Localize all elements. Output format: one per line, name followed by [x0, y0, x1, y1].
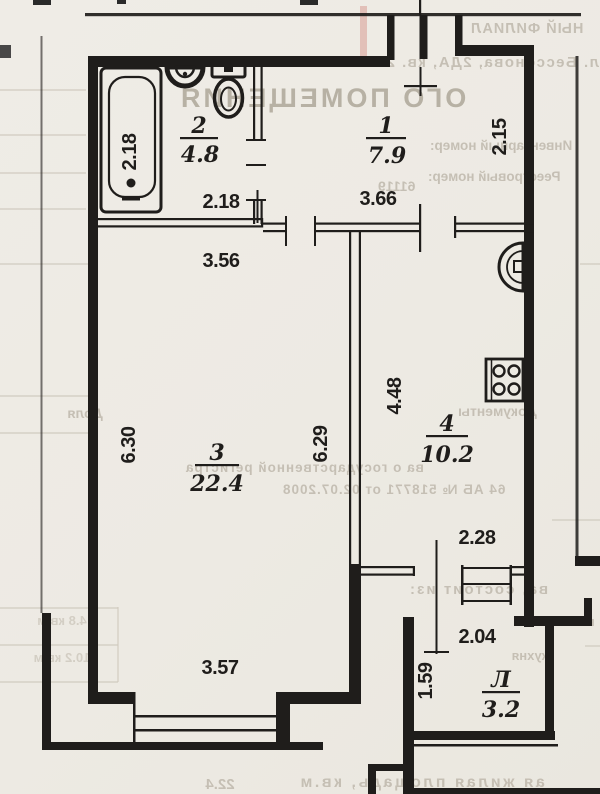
- dim-loggia-depth: 1.59: [415, 662, 437, 699]
- dim-living-height: 6.30: [118, 426, 140, 463]
- exterior-walls: [42, 15, 600, 750]
- fraction-bar: [426, 435, 468, 437]
- washbasin-symbol: [167, 67, 203, 86]
- fraction-bar: [366, 137, 406, 139]
- outer-contour-lines: [41, 13, 582, 613]
- room-bathroom-number: 2: [190, 113, 206, 139]
- room-kitchen-area: 10.2: [420, 442, 474, 468]
- floor-plan-drawing: 2 4.8 1 7.9 3 22.4 4 10.2 Л 3.2 2.18 2.1…: [0, 0, 600, 794]
- room-hall-area: 7.9: [368, 143, 406, 169]
- room-loggia-area: 3.2: [482, 697, 520, 723]
- dimension-marks: [257, 0, 450, 654]
- dim-hall-width: 3.66: [360, 188, 397, 210]
- dim-partition-height: 6.29: [310, 425, 332, 462]
- fraction-bar: [482, 691, 520, 693]
- dimension-labels: 2.18 2.18 3.66 2.15 3.56 6.30 6.29 4.48 …: [118, 118, 511, 699]
- dim-bathtub-length: 2.18: [119, 133, 141, 170]
- room-bathroom-area: 4.8: [181, 142, 219, 168]
- living-room-window: [133, 692, 276, 748]
- fraction-bar: [195, 464, 239, 466]
- room-living-area: 22.4: [189, 471, 244, 497]
- dim-living-width-bottom: 3.57: [202, 657, 239, 679]
- kitchen-sink-symbol: [499, 243, 524, 291]
- scanned-floor-plan-page: НЫЙ ФИЛИАЛ л. Бессонова, 2ДА, кв. 2 ОГО …: [0, 0, 600, 794]
- dim-kitchen-width: 2.28: [459, 527, 496, 549]
- room-hall-number: 1: [378, 113, 393, 139]
- dim-kitchen-height: 4.48: [384, 377, 406, 414]
- dim-loggia-width: 2.04: [459, 626, 497, 648]
- dim-living-width-top: 3.56: [203, 250, 240, 272]
- room-living-number: 3: [209, 440, 224, 466]
- toilet-symbol: [212, 61, 245, 117]
- stove-symbol: [486, 359, 523, 401]
- room-loggia-number: Л: [490, 667, 512, 693]
- interior-partitions: [98, 67, 534, 704]
- dim-bathroom-width: 2.18: [203, 191, 240, 213]
- fraction-bar: [180, 137, 218, 139]
- dim-niche-height: 2.15: [489, 118, 511, 155]
- room-kitchen-number: 4: [439, 411, 454, 437]
